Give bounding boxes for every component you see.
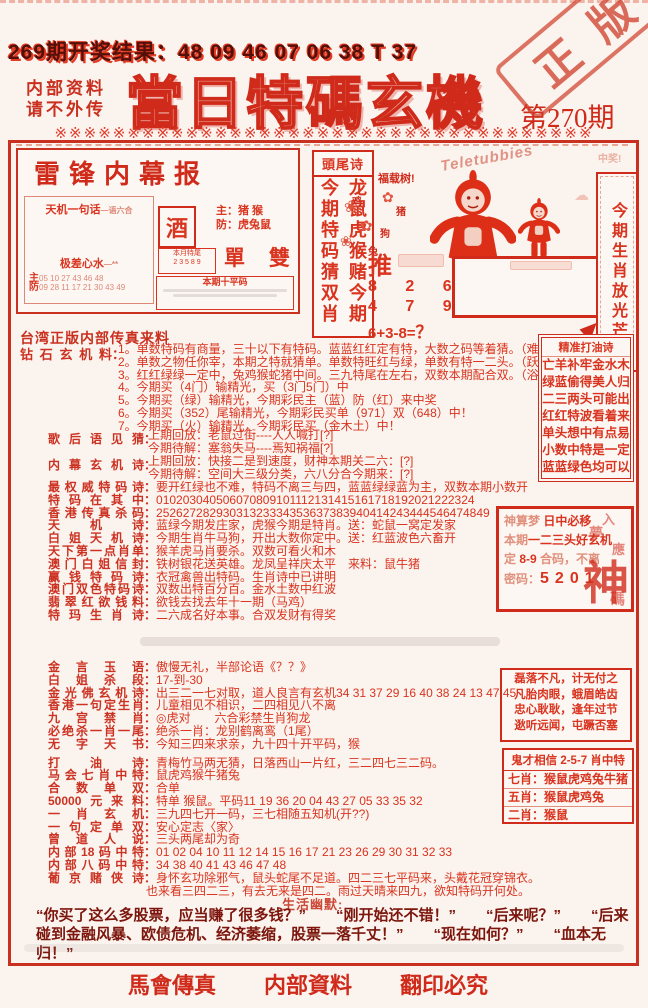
illegible-text-bar — [173, 294, 277, 297]
row-text: 傲慢无礼，半部论语《？？》 — [156, 661, 312, 674]
row-colon: ： — [144, 795, 156, 808]
tianji-label: 天机一句话 — [46, 204, 101, 216]
month-tail-nums: 2 3 5 8 9 — [159, 258, 215, 267]
dream-watermark-char: 入 — [602, 509, 615, 528]
oil-poem-box: 精准打油诗 亡羊补牢金水木 绿蓝偷得美人归 二三两头可能出 红红特波看着来 单头… — [538, 334, 634, 482]
row-label: 必绝杀一肖一尾 — [48, 725, 144, 738]
guess-formula: 6+3-8=？ — [368, 318, 433, 343]
row-text: 猴羊虎马肖要杀。双数可看火和木 — [156, 545, 336, 558]
row-colon: ： — [144, 725, 156, 738]
confidential-note-line1: 内部资料 — [26, 78, 106, 99]
row-text: 绝杀一肖：龙别鹤离鸾（1尾） — [156, 725, 319, 738]
dream-l2-label: 本期 — [504, 533, 528, 547]
row-label: 无字天书 — [48, 738, 144, 751]
dream-l3-value: 8-9 — [519, 552, 536, 566]
row-colon: ： — [144, 872, 156, 885]
info-row: 必绝杀一肖一尾：绝杀一肖：龙别鹤离鸾（1尾） — [10, 725, 634, 738]
row-colon: ： — [144, 808, 156, 821]
row-text: 特单 猴鼠。平码11 19 36 20 04 43 27 05 33 35 32 — [156, 795, 423, 808]
poem-box-title: 頭尾诗 — [314, 152, 372, 177]
info-row: 内部八码中特：34 38 40 41 43 46 47 48 — [10, 859, 634, 872]
row-text: 34 38 40 41 43 46 47 48 — [156, 859, 286, 872]
leifeng-report-box: 雷锋内幕报 天机一句话—语六合 极差心水—** 主05 10 27 43 46 … — [16, 148, 300, 314]
tree-zodiac-char: 鸡 — [352, 193, 362, 208]
info-row: 最权威特码诗：要开红绿也不难，特码不离三与四，蓝蓝绿绿蓝为主，双数本期小数开 — [10, 481, 634, 494]
inside-poem-lines: 上期回放：快接二是到速度，财神本期关二六：[?] 今期待解：空间大三级分类，六八… — [148, 455, 413, 481]
oil-poem-line: 二三两头可能出 — [542, 391, 630, 408]
inside-poem-label-wrap: 内幕玄机诗： — [48, 456, 156, 473]
diamond-line: 1。单数特码有商量，三十以下有特码。蓝蓝红红定有特，大数之码等着猜。（难） — [118, 343, 551, 356]
dream-l1-label: 神算梦 — [504, 514, 540, 528]
leifeng-title: 雷锋内幕报 — [34, 154, 209, 191]
cloud-icon: ☁ — [574, 186, 589, 204]
wine-character-box: 酒 — [158, 206, 196, 248]
footer-item-copyright: 翻印必究 — [400, 968, 488, 1000]
zhu-nums: 05 10 27 43 46 48 — [39, 274, 104, 283]
month-tail-box: 本月特尾 2 3 5 8 9 — [158, 248, 216, 274]
info-row: 50000元来料：特单 猴鼠。平码11 19 36 20 04 43 27 05… — [10, 795, 634, 808]
oil-poem-line: 蓝蓝绿色均可以 — [542, 459, 630, 476]
row-colon: ： — [144, 738, 156, 751]
fang-nums: 09 28 11 17 21 30 43 49 — [39, 283, 125, 292]
row-text: 0102030405060708091011121314151617181920… — [156, 494, 475, 507]
row-label: 内部八码中特 — [48, 859, 144, 872]
row-colon: ： — [144, 609, 156, 622]
money-tree-label: 福载树! — [378, 170, 415, 186]
song-riddle-label-wrap: 歌后语见猜： — [48, 430, 156, 447]
row-colon: ： — [144, 558, 156, 571]
row-text: 要开红绿也不难，特码不离三与四，蓝蓝绿绿蓝为主，双数本期小数开 — [156, 481, 528, 494]
dream-watermark-char: 夢 — [589, 523, 603, 543]
row-label: 特码在其中 — [48, 494, 144, 507]
illegible-text-bar — [163, 289, 287, 292]
row-colon: ： — [144, 545, 156, 558]
info-rows-section2: 金言玉语：傲慢无礼，半部论语《？？》 白姐杀段：17-到-30 金光佛玄机诗：出… — [10, 661, 634, 897]
fang-label: 防 — [29, 282, 39, 293]
zodiac-slogan: 今期生肖放光芒 — [605, 202, 629, 342]
dream-watermark-small: 碼 — [610, 588, 625, 609]
tree-zodiac-char: 狗 — [380, 225, 390, 240]
inner-dashed-line — [16, 144, 628, 146]
oil-poem-line: 亡羊补牢金水木 — [542, 357, 630, 374]
win-note: 中奖! — [598, 150, 621, 165]
song-riddle-lines: 上期回放：老鼠过街----人人喊打[?] 今期待解：塞翁失马----焉知祸福[?… — [148, 429, 333, 455]
row-colon: ： — [144, 494, 156, 507]
inside-poem-line: 上期回放：快接二是到速度，财神本期关二六：[?] — [148, 455, 413, 468]
row-label: 最权威特码诗 — [48, 481, 144, 494]
lottery-fax-sheet: 269期开奖结果：48 09 46 07 06 38 T 37 内部资料 请不外… — [0, 0, 648, 1008]
inside-poem-label: 内幕玄机诗 — [48, 456, 144, 473]
dream-code-box: 神算梦 日中必移 本期一二三头好玄机 定 8-9 合码，不离 密码：5201 入… — [496, 506, 634, 612]
month-tail-title: 本月特尾 — [159, 249, 215, 258]
dream-l1-value: 日中必移 — [543, 514, 591, 528]
inside-poem-line: 今期待解：空间大三级分类，六八分合今期来：[?] — [148, 468, 413, 481]
row-colon: ： — [144, 481, 156, 494]
diamond-line: 2。单数之物任你宰，本期之特就猜单。单数特旺红与绿，单数有特一二头。（跃） — [118, 356, 551, 369]
row-label: 金言玉语 — [48, 661, 144, 674]
diamond-lines: 1。单数特码有商量，三十以下有特码。蓝蓝红红定有特，大数之码等着猜。（难） 2。… — [118, 343, 551, 433]
row-label: 特玛生肖诗 — [48, 609, 144, 622]
info-row: 特码在其中：0102030405060708091011121314151617… — [10, 494, 634, 507]
diamond-label: 钻石玄机料 — [20, 344, 112, 363]
flat-codes-box: 本期十平码 — [156, 276, 294, 310]
flower-icon: ✿ — [360, 217, 373, 235]
jicha-label: 极差心水 — [60, 258, 104, 270]
song-riddle-label: 歌后语见猜 — [48, 430, 144, 447]
footer-item-fax: 馬會傳真 — [128, 968, 216, 1000]
row-label: 澳门白姐信封 — [48, 558, 144, 571]
row-text: 三九四七开一码，三七相随五知机(开??) — [156, 808, 369, 821]
flat-codes-title: 本期十平码 — [157, 278, 293, 287]
flower-icon: ✿ — [382, 189, 394, 206]
info-row: 一肖玄机：三九四七开一码，三七相随五知机(开??) — [10, 808, 634, 821]
row-label: 葡京赌侠诗 — [48, 872, 144, 885]
dream-password-label: 密码： — [504, 572, 540, 586]
confidential-note-line2: 请不外传 — [26, 99, 106, 120]
faded-print-row — [24, 944, 624, 952]
smudge-divider — [140, 637, 500, 646]
row-text: 今知三四来求亲，九十四十开平码，猴 — [156, 738, 360, 751]
tianji-panel: 天机一句话—语六合 极差心水—** 主05 10 27 43 46 48 防09… — [24, 196, 154, 304]
row-text: 铁树银花送英雄。龙凤呈祥庆太平 来料：鼠牛猪 — [156, 558, 420, 571]
dream-l3-label: 定 — [504, 552, 516, 566]
formula-question-mark: ？ — [416, 323, 433, 342]
row-colon: ： — [144, 661, 156, 674]
info-row: 金言玉语：傲慢无礼，半部论语《？？》 — [10, 661, 634, 674]
row-colon: ： — [144, 674, 156, 687]
row-text: 17-到-30 — [156, 674, 203, 687]
info-row: 白姐杀段：17-到-30 — [10, 674, 634, 687]
info-row: 葡京赌侠诗：身怀玄功除邪气，鼠头蛇尾不足道。四二三七平码来，头戴花冠穿锦衣。 — [10, 872, 634, 885]
footer-item-internal: 内部資料 — [264, 968, 352, 1000]
row-text: 二六成名好本事。合双发财有得奖 — [156, 609, 336, 622]
oil-poem-line: 绿蓝偷得美人归 — [542, 374, 630, 391]
single-double-label: 單 雙 — [224, 242, 299, 272]
row-label: 50000元来料 — [48, 795, 144, 808]
oil-poem-line: 红红特波看着来 — [542, 408, 630, 425]
formula-text: 6+3-8= — [368, 325, 416, 342]
diamond-line: 6。今期买（352）尾输精光，今期彩民买单（971）双（648）中！ — [118, 407, 551, 420]
row-colon: ： — [144, 859, 156, 872]
oil-poem-line: 单头想中有点易 — [542, 425, 630, 442]
row-label: 天下第一点肖单 — [48, 545, 144, 558]
song-riddle-line: 今期待解：塞翁失马----焉知祸福[?] — [148, 442, 333, 455]
row-label: 一肖玄机 — [48, 808, 144, 821]
jicha-sub: —** — [104, 260, 118, 269]
row-label: 白姐杀段 — [48, 674, 144, 687]
row-text: 身怀玄功除邪气，鼠头蛇尾不足道。四二三七平码来，头戴花冠穿锦衣。 — [156, 872, 540, 885]
main-fang: 防：虎兔鼠 — [216, 216, 271, 232]
tianji-sub: —语六合 — [101, 206, 133, 215]
footer: 馬會傳真 内部資料 翻印必究 — [128, 968, 488, 1000]
faded-box-title — [510, 261, 572, 270]
song-riddle-line: 上期回放：老鼠过街----人人喊打[?] — [148, 429, 333, 442]
humor-text: “你买了这么多股票，应当赚了很多钱？” “刚开始还不错！” “后来呢？” “后来… — [36, 906, 632, 963]
info-row: 无字天书：今知三四来求亲，九十四十开平码，猴 — [10, 738, 634, 751]
oil-poem-title: 精准打油诗 — [542, 338, 630, 357]
diamond-label-wrap: 钻石玄机料： — [20, 344, 125, 363]
tree-zodiac-char: 猪 — [396, 203, 406, 218]
flower-icon: ❀ — [340, 233, 352, 250]
push-label: 推 — [368, 246, 392, 281]
oil-poem-line: 小数中特是一定 — [542, 442, 630, 459]
confidential-note: 内部资料 请不外传 — [26, 78, 106, 120]
